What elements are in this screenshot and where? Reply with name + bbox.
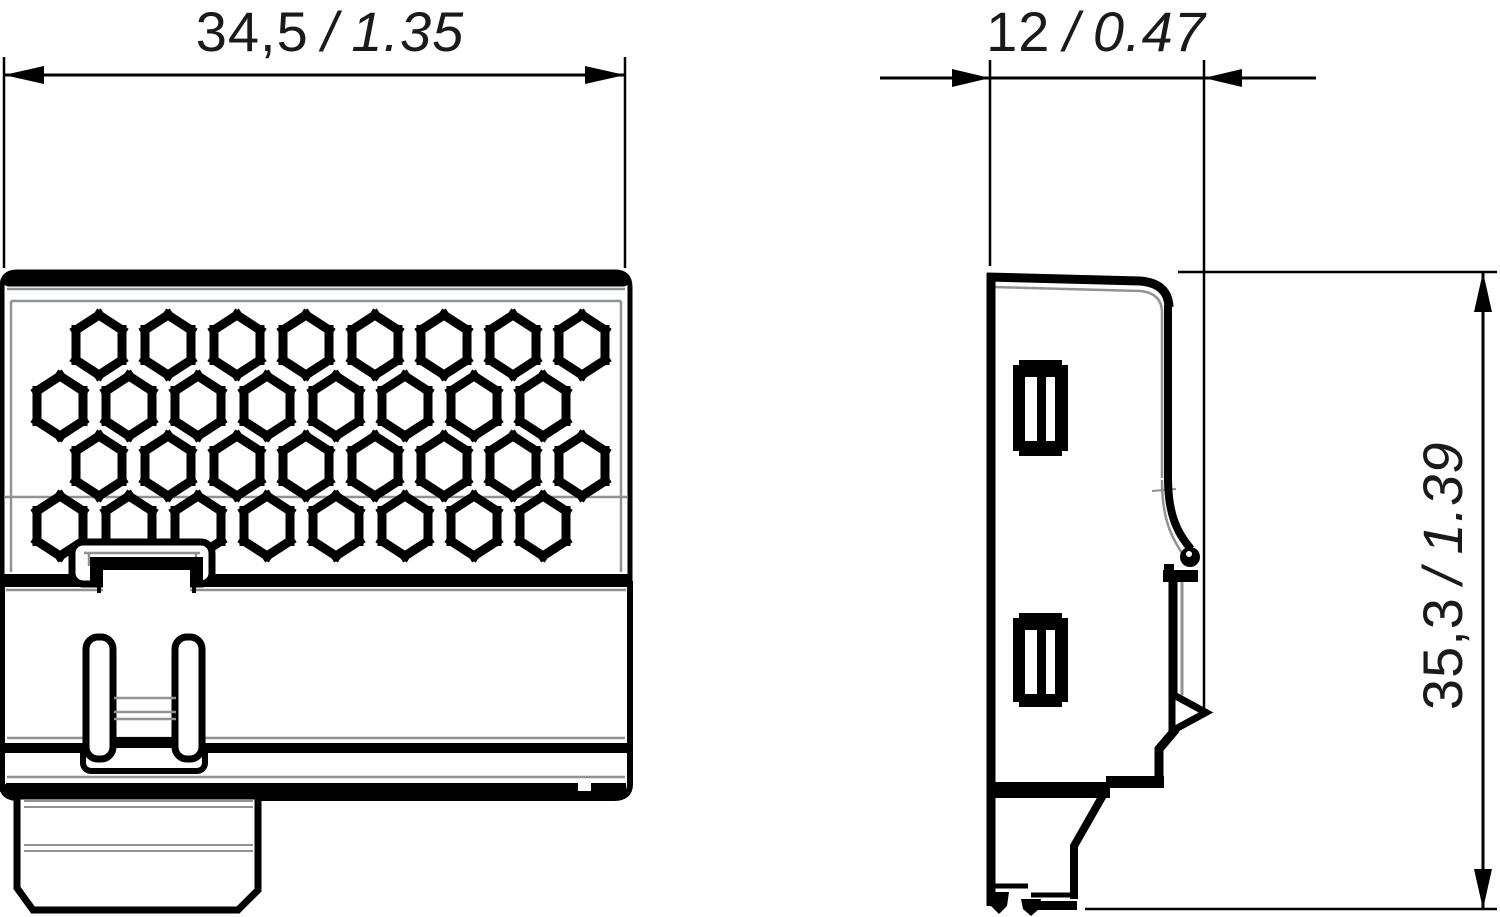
- din-pawl-triangle: [1172, 694, 1206, 731]
- side-lower-right-edge: [1159, 729, 1176, 781]
- din-hook: [1163, 547, 1200, 582]
- dimension-width: [4, 57, 625, 268]
- side-bottom-edge: [987, 782, 1110, 798]
- din-latch-tab: [72, 542, 212, 594]
- vent-slot-upper: [1013, 360, 1068, 456]
- side-foot-edge: [1074, 790, 1106, 899]
- side-foot: [989, 886, 1077, 916]
- front-foot: [17, 796, 258, 910]
- vent-slot-lower: [1013, 613, 1068, 707]
- side-step-edge: [1106, 776, 1164, 788]
- side-curve-edge: [1168, 478, 1191, 549]
- front-view: [0, 272, 630, 910]
- dimension-height: [1085, 272, 1497, 909]
- dimension-depth: [880, 60, 1316, 710]
- front-bottom-edge: [0, 783, 626, 797]
- technical-drawing: [0, 0, 1500, 917]
- drawing-canvas: 34,5/1.35 12/0.47 35,3/1.39: [0, 0, 1500, 917]
- side-view: [987, 273, 1206, 916]
